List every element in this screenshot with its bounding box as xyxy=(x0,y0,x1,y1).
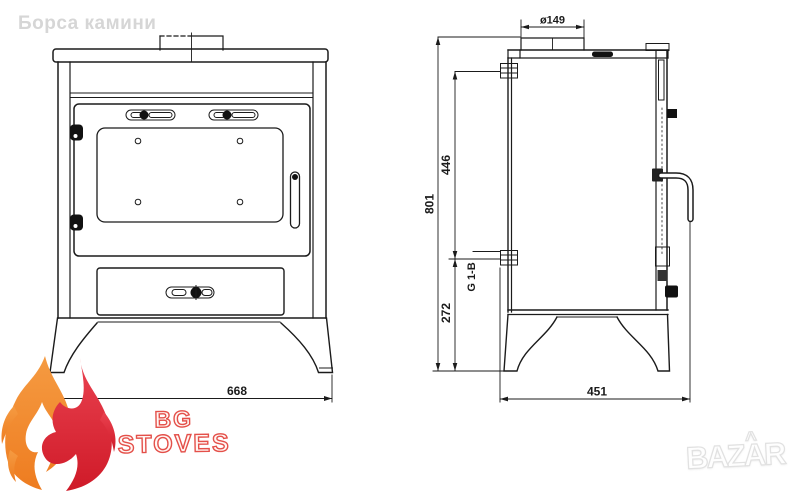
ports-span-label: 446 xyxy=(439,155,453,175)
front-body xyxy=(58,62,326,322)
port-thread-label: G 1-B xyxy=(466,262,478,291)
flame-logo xyxy=(0,350,130,491)
depth-label: 451 xyxy=(587,385,607,399)
air-vent-left xyxy=(126,110,175,120)
side-view: ø149 xyxy=(423,15,691,403)
side-flue-collar xyxy=(521,38,584,50)
ash-drawer xyxy=(97,268,284,315)
seller-logo-line2: STOVES xyxy=(116,430,232,458)
front-top-plate xyxy=(53,49,328,62)
front-flue-collar xyxy=(160,33,223,62)
side-legs xyxy=(504,315,670,372)
glass-screws xyxy=(135,138,243,205)
photo-host-watermark-accent: ^ xyxy=(745,428,758,452)
photo-host-watermark: BAZAR ^ xyxy=(685,435,797,477)
depth-dimension: 451 xyxy=(500,222,690,402)
photo-host-watermark-text: BAZAR xyxy=(685,436,785,476)
port-thread-callout: G 1-B xyxy=(466,252,500,292)
door-hinge-top xyxy=(70,125,83,141)
flue-diameter-label: ø149 xyxy=(540,15,565,27)
side-door-handle xyxy=(652,169,691,220)
front-width-label: 668 xyxy=(227,384,247,398)
damper-knob xyxy=(592,52,613,58)
side-back-wall xyxy=(508,58,512,312)
side-latch-knob xyxy=(665,286,678,298)
product-image: Борса камини xyxy=(0,0,800,491)
total-height-label: 801 xyxy=(423,194,437,214)
side-top-plate xyxy=(508,50,668,58)
seller-logo: BG STOVES xyxy=(116,406,233,458)
door-hinge-bottom xyxy=(70,215,83,231)
lower-port-label: 272 xyxy=(439,303,453,323)
flue-diameter-dimension: ø149 xyxy=(521,15,584,39)
total-height-dimension: 801 xyxy=(423,37,521,371)
side-hinge xyxy=(667,109,677,118)
door-handle xyxy=(291,172,300,228)
side-body-bottom xyxy=(508,310,668,317)
door-glass xyxy=(97,128,283,222)
drawer-handle xyxy=(166,286,214,300)
ports-span-dimension: 446 xyxy=(439,72,500,260)
boiler-port-bottom xyxy=(501,251,518,266)
boiler-port-top xyxy=(501,64,518,79)
front-view: 668 xyxy=(50,33,333,402)
door-frame xyxy=(74,104,310,256)
air-vent-right xyxy=(209,110,258,120)
front-door xyxy=(70,104,310,256)
seller-logo-line1: BG xyxy=(116,406,232,432)
